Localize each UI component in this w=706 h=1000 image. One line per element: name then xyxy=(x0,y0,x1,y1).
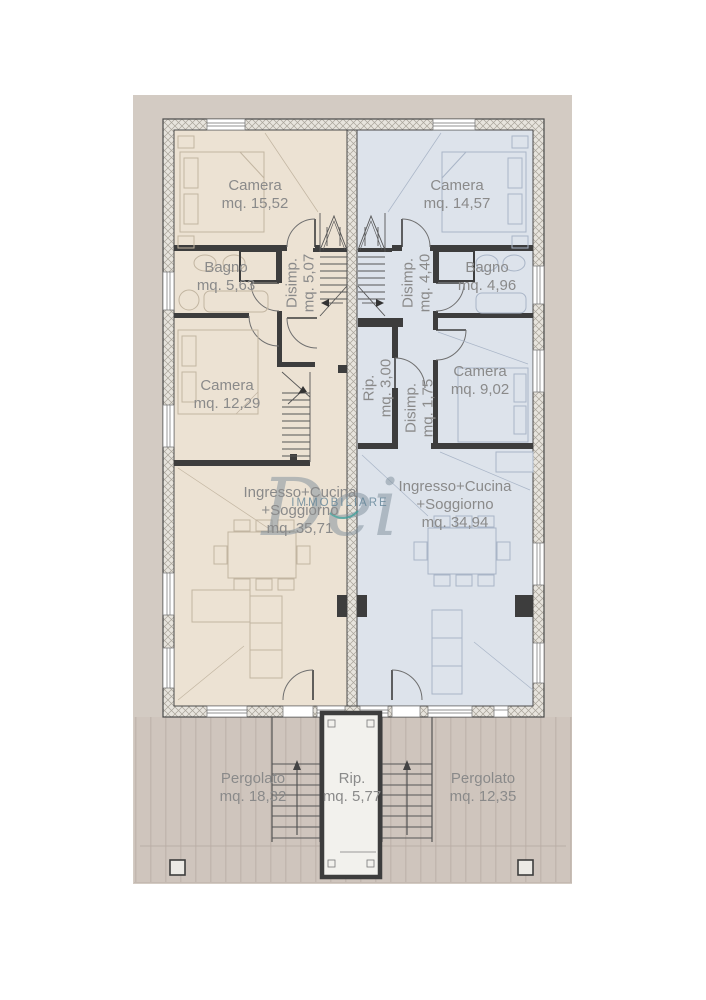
room-area: mq. 4,96 xyxy=(458,277,516,294)
window-top-left xyxy=(207,119,245,130)
room-name-line2: +Soggiorno xyxy=(261,502,338,519)
left-unit-floor xyxy=(174,130,347,706)
label-bagno-left: Bagno mq. 5,63 xyxy=(197,259,255,294)
window-top-right xyxy=(433,119,475,130)
window-left-1 xyxy=(163,272,174,310)
room-name: Bagno xyxy=(465,259,508,276)
label-camera-mid-left: Camera mq. 12,29 xyxy=(194,377,261,412)
label-disimp-right-2: Disimp. mq. 1,75 xyxy=(402,379,436,437)
room-area: mq. 14,57 xyxy=(424,195,491,212)
room-name: Camera xyxy=(228,177,282,194)
window-right-1 xyxy=(533,266,544,304)
room-area: mq. 5,07 xyxy=(300,254,317,312)
room-name: Camera xyxy=(453,363,507,380)
label-bagno-right: Bagno mq. 4,96 xyxy=(458,259,516,294)
window-bottom-5 xyxy=(494,706,508,717)
label-disimp-right: Disimp. mq. 4,40 xyxy=(399,254,433,312)
pillar-right xyxy=(518,860,533,875)
door-gap-bottom-left xyxy=(283,706,313,717)
center-party-wall xyxy=(347,130,357,706)
room-area: mq. 12,35 xyxy=(450,788,517,805)
room-area: mq. 12,29 xyxy=(194,395,261,412)
room-area: mq. 9,02 xyxy=(451,381,509,398)
room-name: Disimp. xyxy=(399,258,416,308)
window-left-2 xyxy=(163,405,174,447)
window-left-3 xyxy=(163,573,174,615)
window-right-3 xyxy=(533,543,544,585)
room-name: Pergolato xyxy=(221,770,285,787)
window-bottom-1 xyxy=(207,706,247,717)
floor-plan-svg: Dei IMMOBILIARE Camera mq. 15,52 Camera … xyxy=(0,0,706,1000)
window-right-4 xyxy=(533,643,544,683)
room-area: mq. 15,52 xyxy=(222,195,289,212)
room-name-line1: Ingresso+Cucina xyxy=(399,478,513,495)
room-area: mq. 4,40 xyxy=(416,254,433,312)
room-area: mq. 18,32 xyxy=(220,788,287,805)
label-camera-top-right: Camera mq. 14,57 xyxy=(424,177,491,212)
door-gap-bottom-right xyxy=(392,706,420,717)
room-name: Bagno xyxy=(204,259,247,276)
window-left-4 xyxy=(163,648,174,688)
label-camera-top-left: Camera mq. 15,52 xyxy=(222,177,289,212)
label-pergolato-right: Pergolato mq. 12,35 xyxy=(450,770,517,805)
room-name: Pergolato xyxy=(451,770,515,787)
room-area: mq. 35,71 xyxy=(267,520,334,537)
room-name: Rip. xyxy=(339,770,366,787)
room-name-line2: +Soggiorno xyxy=(416,496,493,513)
label-disimp-left: Disimp. mq. 5,07 xyxy=(283,254,317,312)
room-name: Rip. xyxy=(360,375,377,402)
floor-plan-page: Dei IMMOBILIARE Camera mq. 15,52 Camera … xyxy=(0,0,706,1000)
room-name: Disimp. xyxy=(402,383,419,433)
room-area: mq. 5,63 xyxy=(197,277,255,294)
room-area: mq. 5,77 xyxy=(323,788,381,805)
room-name-line1: Ingresso+Cucina xyxy=(244,484,358,501)
room-area: mq. 3,00 xyxy=(377,359,394,417)
room-name: Camera xyxy=(430,177,484,194)
label-camera-mid-right: Camera mq. 9,02 xyxy=(451,363,509,398)
room-area: mq. 34,94 xyxy=(422,514,489,531)
room-area: mq. 1,75 xyxy=(419,379,436,437)
window-bottom-4 xyxy=(428,706,472,717)
window-right-2 xyxy=(533,350,544,392)
room-name: Disimp. xyxy=(283,258,300,308)
pillar-left xyxy=(170,860,185,875)
room-name: Camera xyxy=(200,377,254,394)
label-pergolato-left: Pergolato mq. 18,32 xyxy=(220,770,287,805)
